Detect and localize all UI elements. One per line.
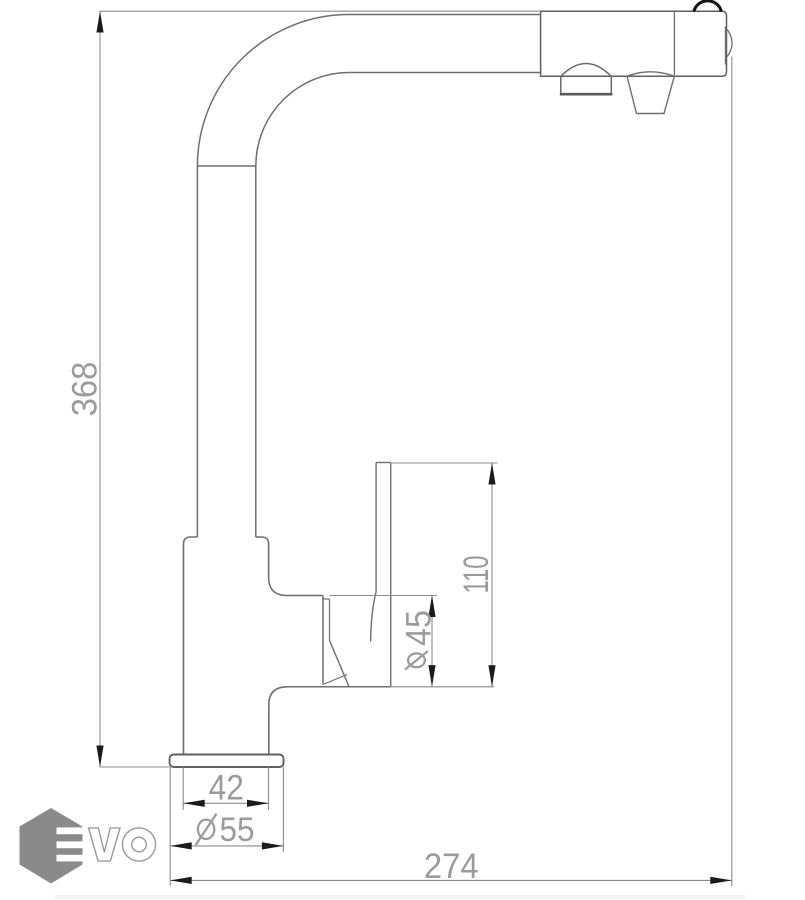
svg-text:45: 45 [399, 610, 438, 646]
svg-text:274: 274 [424, 847, 479, 886]
svg-text:368: 368 [66, 362, 105, 417]
svg-text:55: 55 [220, 811, 255, 849]
svg-text:42: 42 [209, 769, 244, 808]
svg-text:110: 110 [457, 556, 496, 594]
